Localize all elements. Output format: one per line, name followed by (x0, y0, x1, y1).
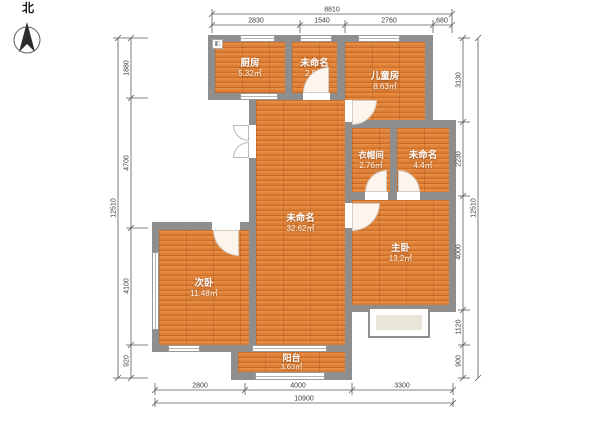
wall (152, 222, 256, 230)
room-children-area: 8.63㎡ (373, 82, 397, 91)
kitchen-sliding-door (240, 93, 278, 100)
dim-right-seg-1: 3130 (456, 72, 463, 88)
room-master-name: 主卧 (391, 243, 410, 254)
door-opening (303, 93, 330, 100)
dim-bottom-total: 10900 (294, 396, 313, 403)
window (255, 372, 325, 380)
door-opening (345, 100, 352, 122)
dim-right-seg-3: 4000 (456, 244, 463, 260)
dim-left-total: 12510 (111, 198, 118, 217)
dim-top-total: 8810 (324, 7, 340, 14)
room-unnamed-mid-name: 未命名 (409, 150, 438, 161)
room-balcony-area: 3.63㎡ (280, 363, 302, 371)
wall (390, 128, 397, 200)
entry-door-leaf (233, 142, 249, 158)
bay-window-sill (374, 313, 424, 332)
door-opening (365, 192, 388, 200)
dim-top-seg-1: 2830 (248, 18, 264, 25)
wall (285, 35, 292, 100)
room-living-name: 未命名 (286, 213, 315, 224)
dim-right-seg-5: 900 (456, 355, 463, 367)
room-children-name: 儿童房 (371, 71, 400, 82)
wall (249, 230, 256, 352)
window (240, 35, 275, 42)
dim-top-seg-2: 1540 (314, 18, 330, 25)
door-opening (212, 222, 240, 230)
balcony-sliding-door (252, 345, 327, 352)
dim-bottom-seg-1: 2800 (192, 383, 208, 390)
room-kitchen-name: 厨房 (240, 58, 259, 69)
room-cloakroom-name: 衣帽间 (358, 150, 384, 161)
dim-bottom-seg-2: 4000 (290, 383, 306, 390)
wall (345, 100, 352, 380)
room-balcony[interactable]: 阳台 3.63㎡ (238, 352, 345, 372)
room-living[interactable]: 未命名 32.62㎡ (256, 100, 345, 345)
dim-left-seg-2: 4700 (124, 155, 131, 171)
room-kitchen[interactable]: 厨房 5.32㎡ (215, 42, 285, 93)
dim-top-seg-4: 680 (436, 18, 448, 25)
room-second-name: 次卧 (194, 278, 213, 289)
compass-north-label: 北 (6, 2, 50, 15)
window (358, 35, 400, 42)
room-cloakroom-area: 2.76㎡ (359, 161, 383, 170)
room-living-area: 32.62㎡ (286, 224, 314, 233)
wall (425, 35, 433, 128)
door-opening (397, 192, 420, 200)
compass-arrow-icon (6, 15, 50, 61)
dim-left-seg-4: 920 (124, 355, 131, 367)
dim-left-seg-3: 4100 (124, 278, 131, 294)
entry-door-leaf (233, 125, 249, 141)
window (300, 35, 332, 42)
room-second-area: 11.48㎡ (190, 289, 217, 298)
wall (449, 120, 456, 312)
room-kitchen-area: 5.32㎡ (238, 69, 262, 78)
wall (337, 35, 345, 100)
dim-bottom-seg-3: 3300 (394, 383, 410, 390)
dim-top-seg-3: 2760 (381, 18, 397, 25)
room-unnamed-mid-area: 4.4㎡ (413, 161, 432, 170)
dim-left-seg-1: 1880 (124, 60, 131, 76)
entry-door-opening (249, 125, 256, 158)
window (152, 252, 159, 330)
dim-right-total: 12510 (471, 198, 478, 217)
wall (249, 100, 256, 230)
compass-north: 北 (6, 2, 50, 62)
plan-watermark-icon: ◧ (212, 39, 223, 49)
door-opening (345, 203, 352, 228)
room-master-area: 13.2㎡ (389, 254, 413, 263)
dim-right-seg-2: 2230 (456, 151, 463, 167)
dim-right-seg-4: 1120 (456, 319, 463, 334)
floor-plan-canvas: 北 厨房 5.32㎡ 未命名 2.9㎡ 儿童房 8.63㎡ 未命名 32.62㎡… (0, 0, 600, 427)
window (168, 345, 200, 352)
